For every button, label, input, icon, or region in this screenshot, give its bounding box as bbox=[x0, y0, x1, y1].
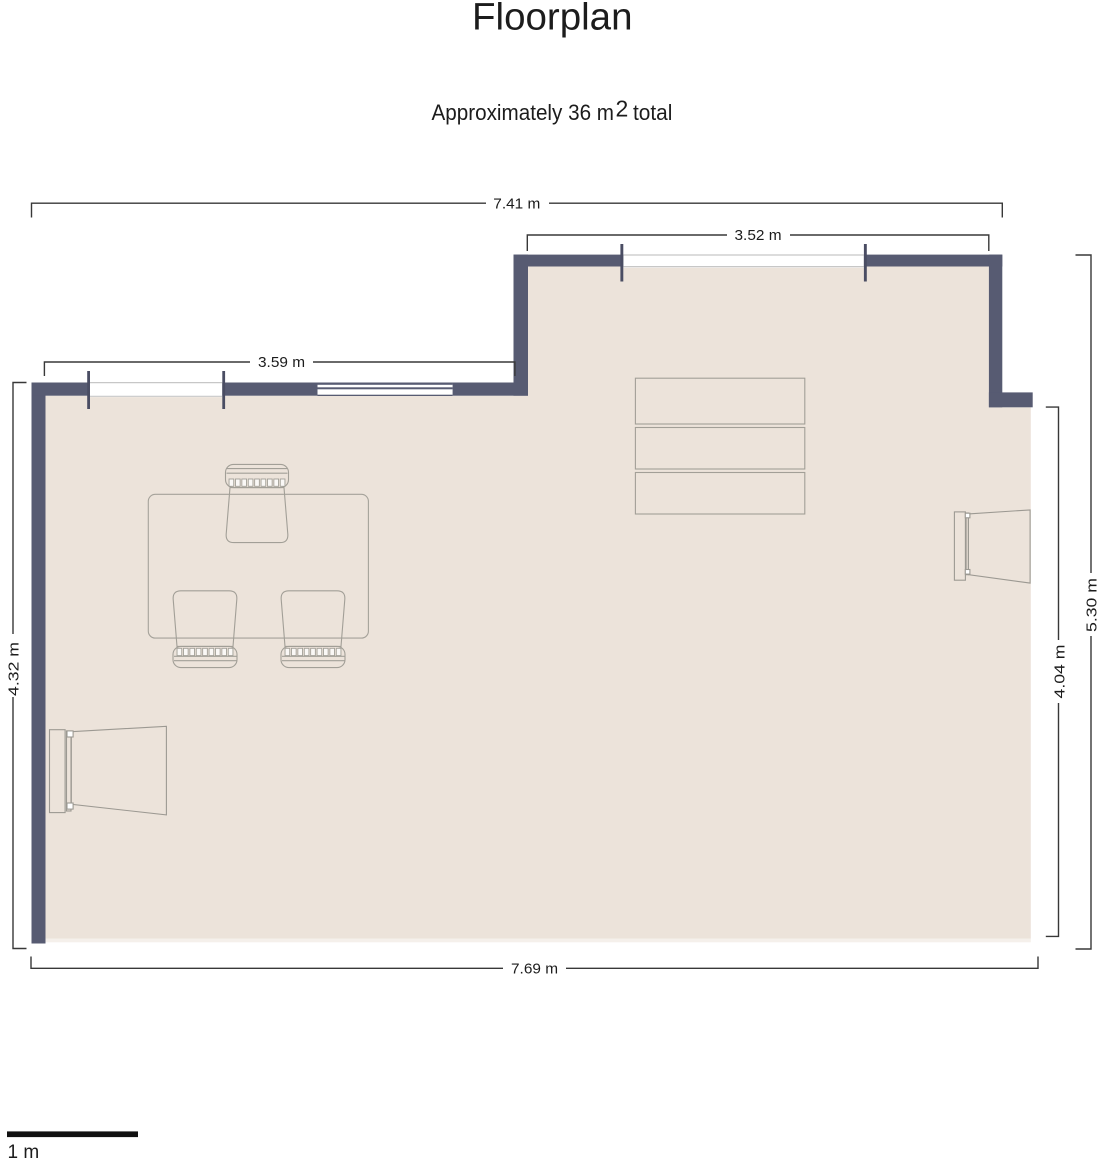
svg-text:Floorplan: Floorplan bbox=[472, 0, 633, 39]
svg-text:7.41 m: 7.41 m bbox=[493, 195, 540, 212]
svg-text:Approximately 36 m: Approximately 36 m bbox=[432, 100, 615, 125]
svg-text:total: total bbox=[633, 100, 672, 125]
svg-text:3.59 m: 3.59 m bbox=[258, 354, 305, 371]
svg-text:4.04 m: 4.04 m bbox=[1051, 645, 1068, 699]
svg-text:1 m: 1 m bbox=[8, 1142, 40, 1163]
svg-text:5.30 m: 5.30 m bbox=[1083, 578, 1100, 632]
svg-text:7.69 m: 7.69 m bbox=[511, 960, 558, 977]
svg-text:2: 2 bbox=[616, 96, 629, 122]
svg-text:3.52 m: 3.52 m bbox=[735, 227, 782, 244]
svg-text:4.32 m: 4.32 m bbox=[5, 642, 22, 696]
